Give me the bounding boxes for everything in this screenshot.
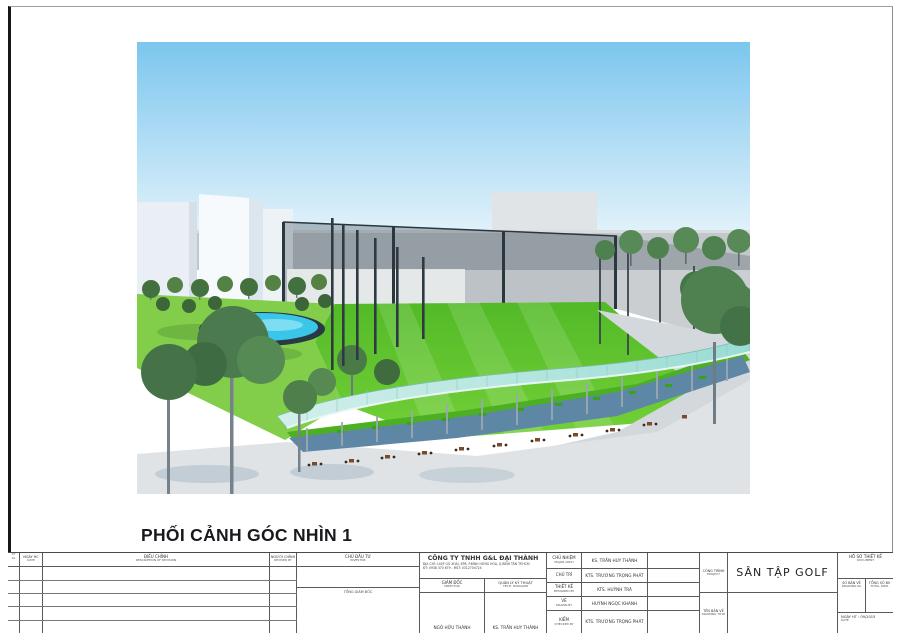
drawing-title-sub: DRAWING TITLE: [700, 613, 727, 617]
revision-no-bottom: SL: [8, 557, 19, 561]
revision-row-line: [8, 593, 297, 594]
total-drawings-sub: TOTAL DRW.: [866, 585, 893, 589]
director-signature: NGÔ HỮU THÀNH: [420, 593, 485, 633]
drawing-title-value-cell: [728, 593, 838, 633]
company-info: CÔNG TY TNHH G&L ĐẠI THÀNH ĐỊA CHỈ: 140F…: [420, 553, 547, 579]
revision-row-line: [8, 606, 297, 607]
staff-sub: DRAWN BY: [547, 604, 581, 608]
staff-label: CHỦ TRÌ: [547, 573, 581, 578]
drawing-no-sub: DRAWING No: [838, 585, 865, 589]
revision-date-header: NGÀY HC DATE: [20, 553, 43, 567]
view-title: PHỐI CẢNH GÓC NHÌN 1: [141, 525, 352, 546]
revision-by-column: [270, 567, 297, 633]
director-header: GIÁM ĐỐC DIRECTOR: [420, 579, 485, 593]
director-name: NGÔ HỮU THÀNH: [420, 625, 484, 630]
perspective-render: [137, 42, 750, 495]
revision-desc-header: ĐIỀU CHỈNH DESCRIPTION OF REVISION: [43, 553, 270, 567]
staff-name-kiem: KTS. TRƯƠNG TRỌNG PHÁT: [582, 611, 648, 633]
revision-date-column: [20, 567, 43, 633]
spare-cell: [648, 553, 700, 569]
staff-name-thiet-ke: KTS. HUỲNH TRÃ: [582, 583, 648, 597]
staff-sub: DESIGNED BY: [547, 590, 581, 594]
staff-label-ve: VẼ DRAWN BY: [547, 597, 582, 611]
staff-sub: MAJOR ARCH: [547, 561, 581, 565]
spare-cell: [648, 611, 700, 633]
staff-name: HUỲNH NGỌC KHANH: [582, 601, 647, 606]
staff-label-kiem: KIỂM CHECKED BY: [547, 611, 582, 633]
revision-row-line: [8, 620, 297, 621]
manager-sub: TECH. MANAGER: [485, 585, 546, 589]
project-name: SÂN TẬP GOLF: [728, 566, 837, 579]
project-name-cell: SÂN TẬP GOLF: [728, 553, 838, 593]
staff-name: KTS. HUỲNH TRÃ: [582, 587, 647, 592]
title-block: ST SL NGÀY HC DATE ĐIỀU CHỈNH DESCRIPTIO…: [8, 552, 893, 632]
project-sub: PROJECT: [700, 573, 727, 577]
manager-signature: KS. TRẦN HUY THÀNH: [485, 593, 547, 633]
revision-desc-sub: DESCRIPTION OF REVISION: [43, 559, 269, 563]
finish-date-sub: DATE: [841, 619, 893, 623]
document-cell: HỒ SƠ THIẾT KẾ DOCUMENT: [838, 553, 893, 579]
total-drawings-cell: TỔNG SỐ BV TOTAL DRW.: [866, 579, 893, 613]
investor-body: [297, 567, 420, 588]
revision-no-header: ST SL: [8, 553, 20, 567]
finish-date-cell: NGÀY HT : 09/2015 DATE: [838, 613, 893, 633]
document-sub: DOCUMENT: [838, 559, 893, 563]
manager-name: KS. TRẦN HUY THÀNH: [485, 625, 546, 630]
staff-label-thiet-ke: THIẾT KẾ DESIGNED BY: [547, 583, 582, 597]
project-label-cell: CÔNG TRÌNH PROJECT: [700, 553, 728, 593]
staff-name-ve: HUỲNH NGỌC KHANH: [582, 597, 648, 611]
staff-name-chu-tri: KTS. TRƯƠNG TRỌNG PHÁT: [582, 569, 648, 583]
staff-name-chu-nhiem: KS. TRẦN HUY THÀNH: [582, 553, 648, 569]
revision-row-line: [8, 580, 297, 581]
staff-name: KTS. TRƯƠNG TRỌNG PHÁT: [582, 619, 647, 624]
investor-header: CHỦ ĐẦU TƯ INVESTOR: [297, 553, 420, 567]
revision-by-sub: REVISED BY: [270, 559, 296, 563]
staff-label-chu-tri: CHỦ TRÌ: [547, 569, 582, 583]
company-phone: ĐT: 0938 370 679 - MST: 0312704724: [423, 566, 546, 570]
revision-date-sub: DATE: [20, 559, 42, 563]
revision-no-column: [8, 567, 20, 633]
revision-desc-column: [43, 567, 270, 633]
investor-signature: TỔNG GIÁM ĐỐC: [297, 588, 420, 633]
investor-role: TỔNG GIÁM ĐỐC: [297, 590, 419, 594]
drawing-no-cell: SỐ BẢN VẼ DRAWING No: [838, 579, 866, 613]
investor-sub: INVESTOR: [297, 559, 419, 563]
staff-sub: CHECKED BY: [547, 623, 581, 627]
staff-name: KS. TRẦN HUY THÀNH: [582, 558, 647, 563]
staff-name: KTS. TRƯƠNG TRỌNG PHÁT: [582, 573, 647, 578]
spare-cell: [648, 569, 700, 583]
director-sub: DIRECTOR: [420, 585, 484, 589]
spare-cell: [648, 597, 700, 611]
drawing-title-label-cell: TÊN BẢN VẼ DRAWING TITLE: [700, 593, 728, 633]
manager-header: QUẢN LÝ KỸ THUẬT TECH. MANAGER: [485, 579, 547, 593]
staff-label-chu-nhiem: CHỦ NHIỆM MAJOR ARCH: [547, 553, 582, 569]
company-name: CÔNG TY TNHH G&L ĐẠI THÀNH: [420, 555, 546, 562]
spare-cell: [648, 583, 700, 597]
revision-by-header: NGƯỜI CHỈNH REVISED BY: [270, 553, 297, 567]
